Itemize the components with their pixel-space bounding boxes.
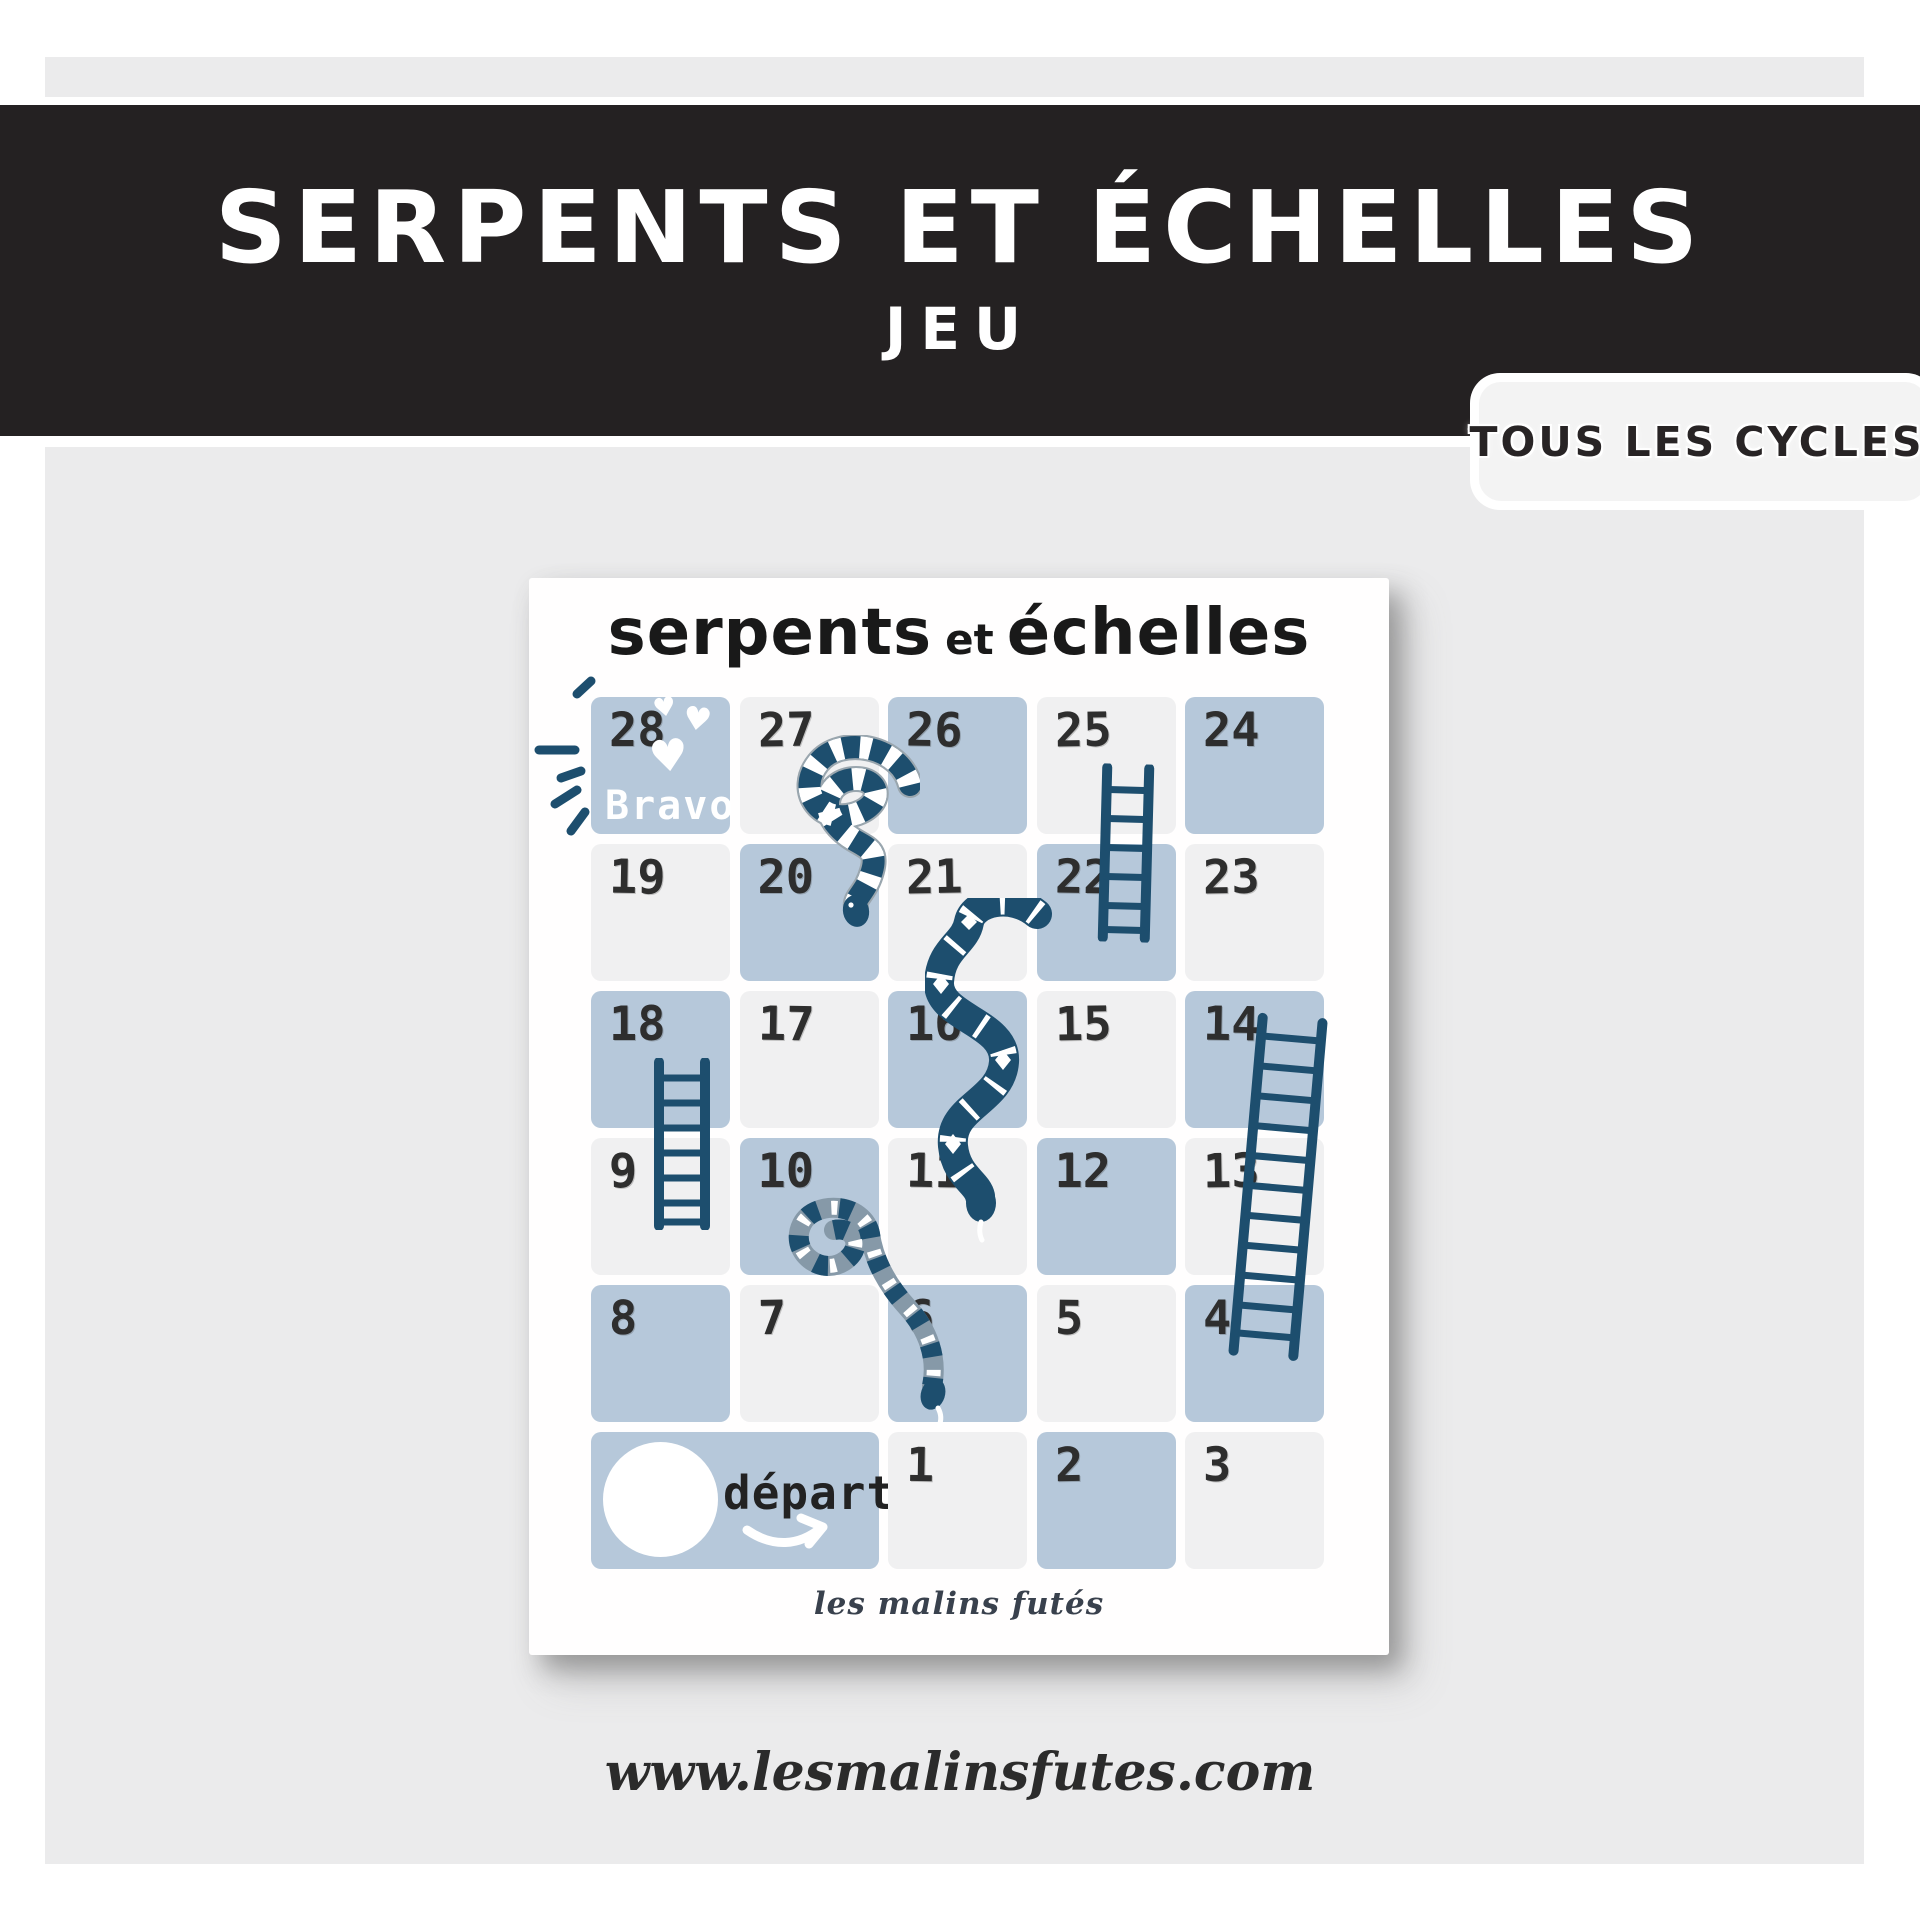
board-cell-10: 10 bbox=[740, 1138, 879, 1275]
board-cell-20: 20 bbox=[740, 844, 879, 981]
cell-number-1: 1 bbox=[906, 1442, 935, 1489]
board-cell-2: 2 bbox=[1037, 1432, 1176, 1569]
poster-title: SERPENTS ET ÉCHELLES bbox=[215, 178, 1706, 278]
bravo-label: Bravo! bbox=[605, 783, 762, 829]
cell-number-16: 16 bbox=[906, 1001, 963, 1048]
cell-number-15: 15 bbox=[1054, 1001, 1111, 1049]
cell-number-7: 7 bbox=[757, 1295, 786, 1342]
board-cell-18: 18 bbox=[591, 991, 730, 1128]
board-cell-13: 13 bbox=[1185, 1138, 1324, 1275]
cell-number-24: 24 bbox=[1203, 707, 1260, 754]
board-cell-7: 7 bbox=[740, 1285, 879, 1422]
brand-signature: les malins futés bbox=[529, 1586, 1389, 1622]
cell-number-25: 25 bbox=[1054, 707, 1111, 755]
cell-number-26: 26 bbox=[906, 707, 963, 755]
cell-number-4: 4 bbox=[1203, 1295, 1231, 1342]
cell-number-13: 13 bbox=[1203, 1148, 1260, 1196]
board-title: serpents et échelles bbox=[529, 596, 1389, 670]
board-cell-9: 9 bbox=[591, 1138, 730, 1275]
board-cell-4: 4 bbox=[1185, 1285, 1324, 1422]
board-cell-11: 11 bbox=[888, 1138, 1027, 1275]
heart-icon: ♥ bbox=[647, 733, 691, 781]
cell-number-6: 6 bbox=[906, 1295, 934, 1342]
cell-number-5: 5 bbox=[1054, 1295, 1083, 1342]
board-cell-23: 23 bbox=[1185, 844, 1324, 981]
game-board-card: serpents et échelles 28♥♥♥Bravo!27262524… bbox=[529, 578, 1389, 1655]
board-cell-12: 12 bbox=[1037, 1138, 1176, 1275]
cell-number-9: 9 bbox=[609, 1148, 638, 1195]
cell-number-23: 23 bbox=[1203, 854, 1260, 902]
board-cell-28: 28♥♥♥Bravo! bbox=[591, 697, 730, 834]
cell-number-17: 17 bbox=[757, 1001, 814, 1049]
cell-number-22: 22 bbox=[1054, 854, 1111, 902]
board-cell-25: 25 bbox=[1037, 697, 1176, 834]
board-cell-3: 3 bbox=[1185, 1432, 1324, 1569]
board-cell-27: 27 bbox=[740, 697, 879, 834]
cell-number-8: 8 bbox=[609, 1295, 638, 1342]
board-cell-16: 16 bbox=[888, 991, 1027, 1128]
game-board-grid: 28♥♥♥Bravo!27262524192021222318171615149… bbox=[591, 697, 1324, 1569]
board-cell-26: 26 bbox=[888, 697, 1027, 834]
cell-number-21: 21 bbox=[906, 854, 963, 902]
website-url: www.lesmalinsfutes.com bbox=[0, 1742, 1920, 1803]
board-cell-5: 5 bbox=[1037, 1285, 1176, 1422]
poster-subtitle: JEU bbox=[885, 300, 1035, 358]
board-cell-8: 8 bbox=[591, 1285, 730, 1422]
cell-number-2: 2 bbox=[1054, 1442, 1083, 1489]
cycles-badge-inner: TOUS LES CYCLES bbox=[1479, 382, 1920, 501]
heart-icon: ♥ bbox=[651, 693, 678, 723]
start-arrow-icon bbox=[741, 1512, 833, 1560]
board-cell-14: 14 bbox=[1185, 991, 1324, 1128]
board-cell-21: 21 bbox=[888, 844, 1027, 981]
board-title-part1: serpents bbox=[608, 596, 933, 670]
cycles-badge: TOUS LES CYCLES bbox=[1470, 373, 1920, 510]
board-cell-1: 1 bbox=[888, 1432, 1027, 1569]
board-cell-15: 15 bbox=[1037, 991, 1176, 1128]
cell-number-14: 14 bbox=[1203, 1001, 1260, 1049]
board-cell-6: 6 bbox=[888, 1285, 1027, 1422]
cell-number-10: 10 bbox=[758, 1148, 815, 1195]
poster-canvas: { "banner": { "title": "SERPENTS ET ÉCHE… bbox=[0, 0, 1920, 1920]
cell-number-3: 3 bbox=[1203, 1442, 1231, 1489]
board-cell-19: 19 bbox=[591, 844, 730, 981]
board-title-part3: échelles bbox=[1007, 596, 1311, 670]
start-circle bbox=[603, 1442, 718, 1557]
cell-number-11: 11 bbox=[906, 1148, 963, 1196]
board-cell-24: 24 bbox=[1185, 697, 1324, 834]
cell-number-20: 20 bbox=[758, 854, 815, 901]
cell-number-12: 12 bbox=[1055, 1148, 1112, 1195]
board-cell-dpart: départ bbox=[591, 1432, 879, 1569]
cell-number-18: 18 bbox=[609, 1001, 666, 1048]
board-title-part2: et bbox=[945, 615, 994, 664]
cell-number-19: 19 bbox=[609, 854, 666, 902]
cell-number-27: 27 bbox=[757, 707, 814, 755]
board-cell-17: 17 bbox=[740, 991, 879, 1128]
cycles-badge-label: TOUS LES CYCLES bbox=[1470, 418, 1920, 466]
board-cell-22: 22 bbox=[1037, 844, 1176, 981]
heart-icon: ♥ bbox=[681, 701, 714, 737]
